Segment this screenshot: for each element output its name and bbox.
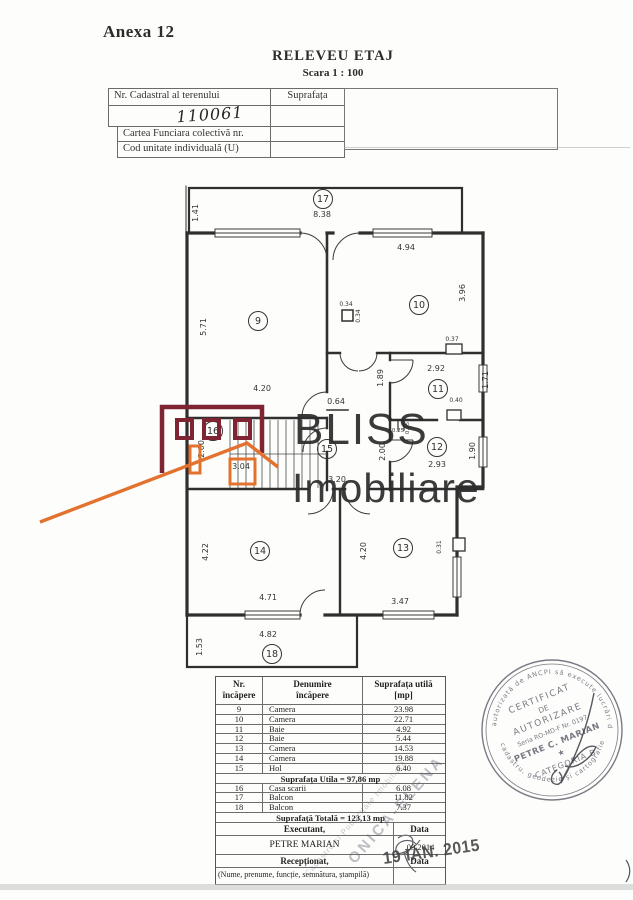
cell-suprafata: 4.92 [362,725,444,734]
logo-roof [40,443,278,522]
cell-denumire: Camera [262,754,362,763]
cell-denumire: Baie [262,725,362,734]
watermark-text-imobiliare: Imobiliare [292,465,480,511]
dimension-label: 8.38 [313,210,331,219]
room-number-label: 10 [413,300,425,311]
executant-row: Executant, Data [216,822,445,835]
cell-denumire: Hol [262,764,362,773]
room-number-label: 18 [266,649,278,660]
cell-nr: 16 [216,784,262,793]
dimension-label: 0.37 [445,336,459,343]
header-denumire: Denumire încăpere [262,677,362,704]
dimension-label: 2.92 [427,364,445,373]
room-number-label: 11 [432,384,444,395]
footnote-row: (Nume, prenume, funcție, semnătura, ștam… [216,867,445,884]
dimension-label: 3.96 [458,284,467,302]
cell-nr: 10 [216,715,262,724]
table-row: 12Baie5.44 [216,733,445,743]
dimension-label: 1.71 [481,371,490,389]
room-number-label: 13 [397,543,409,554]
stray-scan-mark [626,860,630,882]
cell-denumire: Balcon [262,793,362,802]
cell-nr: 14 [216,754,262,763]
cell-nr: 12 [216,734,262,743]
dimension-label: 4.82 [259,630,277,639]
cell-nr: 17 [216,793,262,802]
dimension-label: 1.53 [195,638,204,656]
dimension-label: 3.04 [232,462,250,471]
empty-cell [393,868,445,884]
dimension-label: 4.94 [397,243,415,252]
cell-nr: 13 [216,744,262,753]
room-number-label: 14 [254,546,266,557]
dimension-label: 1.41 [191,204,200,222]
dimension-label: 3.47 [391,597,409,606]
scanner-band [0,884,633,890]
cell-denumire: Baie [262,734,362,743]
table-row: 14Camera19.88 [216,753,445,763]
stamp-rim-top-text: autorizată de ANCPI să execute lucrări d… [0,0,614,730]
table-row: 11Baie4.92 [216,724,445,734]
header-nr: Nr. încăpere [216,677,262,704]
cell-denumire: Camera [262,715,362,724]
cell-denumire: Camera [262,744,362,753]
dimension-label: 1.90 [468,442,477,460]
room-number-label: 17 [317,194,329,205]
cell-suprafata: 14.53 [362,744,444,753]
cell-nr: 18 [216,803,262,812]
watermark-text-bliss: BLISS [294,405,429,454]
dimension-label: 1.89 [376,369,385,387]
dimension-label: 0.34 [339,301,353,308]
dimension-label: 0.40 [449,397,463,404]
header-suprafata: Suprafața utilă [mp] [362,677,444,704]
pillar [342,310,353,321]
cell-nr: 9 [216,705,262,714]
dimension-label: 0.34 [355,309,362,323]
total-row: Suprafață Totală = 123,13 mp [216,812,445,822]
cell-nr: 11 [216,725,262,734]
dimension-label: 4.20 [359,542,368,560]
dimension-label: 4.20 [253,384,271,393]
cell-suprafata: 22.71 [362,715,444,724]
table-header-row: Nr. încăpere Denumire încăpere Suprafața… [216,677,445,704]
cell-denumire: Casa scarii [262,784,362,793]
dimension-label: 0.31 [436,540,443,554]
cell-nr: 15 [216,764,262,773]
data-label: Data [393,823,445,835]
table-row: 10Camera22.71 [216,714,445,724]
dimension-label: 4.22 [201,543,210,561]
dimension-label: 4.71 [259,593,277,602]
dimension-label: 5.71 [199,318,208,336]
cell-suprafata: 23.98 [362,705,444,714]
scanned-document-page: Anexa 12 RELEVEU ETAJ Scara 1 : 100 Nr. … [0,0,633,900]
cell-denumire: Camera [262,705,362,714]
table-row: 13Camera14.53 [216,743,445,753]
room-number-label: 12 [431,442,443,453]
table-row: 9Camera23.98 [216,704,445,714]
table-row: 15Hol6.40 [216,763,445,773]
watermark-logo: BLISS Imobiliare [40,405,480,522]
svg-text:autorizată de ANCPI să execute: autorizată de ANCPI să execute lucrări d… [0,0,614,730]
cell-denumire: Balcon [262,803,362,812]
room-number-label: 9 [255,316,261,327]
cell-suprafata: 5.44 [362,734,444,743]
stamp-star: ★ [556,747,566,758]
